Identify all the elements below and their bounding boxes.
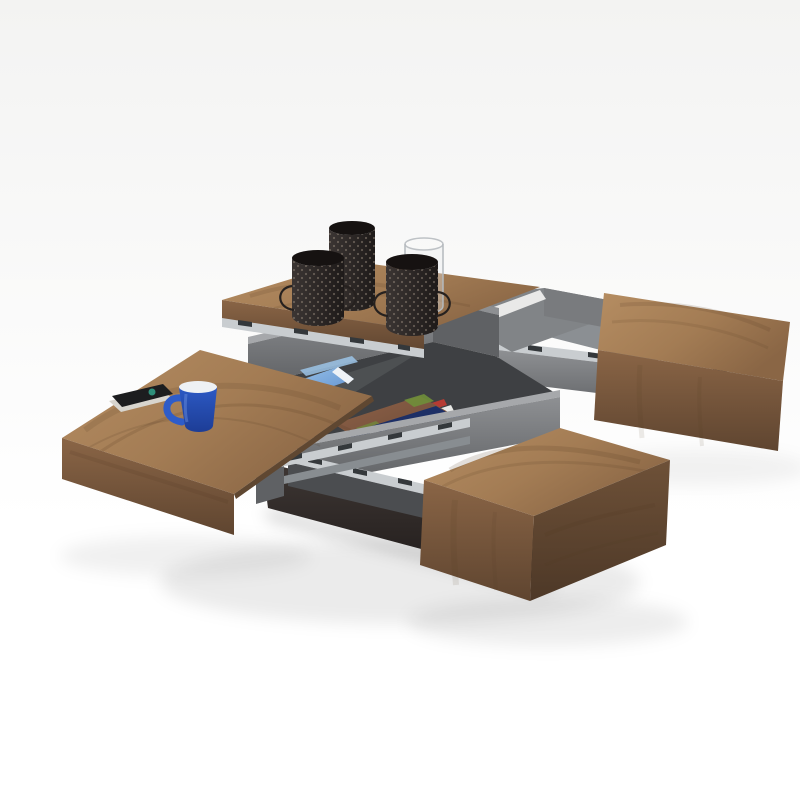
mug-rim bbox=[179, 381, 217, 393]
candle-opening bbox=[292, 250, 344, 266]
candle-opening bbox=[386, 254, 438, 270]
candle-opening bbox=[329, 221, 375, 235]
coffee-table-scene: Modern square coffee table with four sli… bbox=[0, 0, 800, 800]
shadow-front bbox=[408, 598, 688, 646]
product-photo: Modern square coffee table with four sli… bbox=[0, 0, 800, 800]
shadow-left bbox=[60, 536, 310, 576]
mug-highlight bbox=[185, 394, 187, 422]
notebook-logo bbox=[149, 389, 156, 396]
